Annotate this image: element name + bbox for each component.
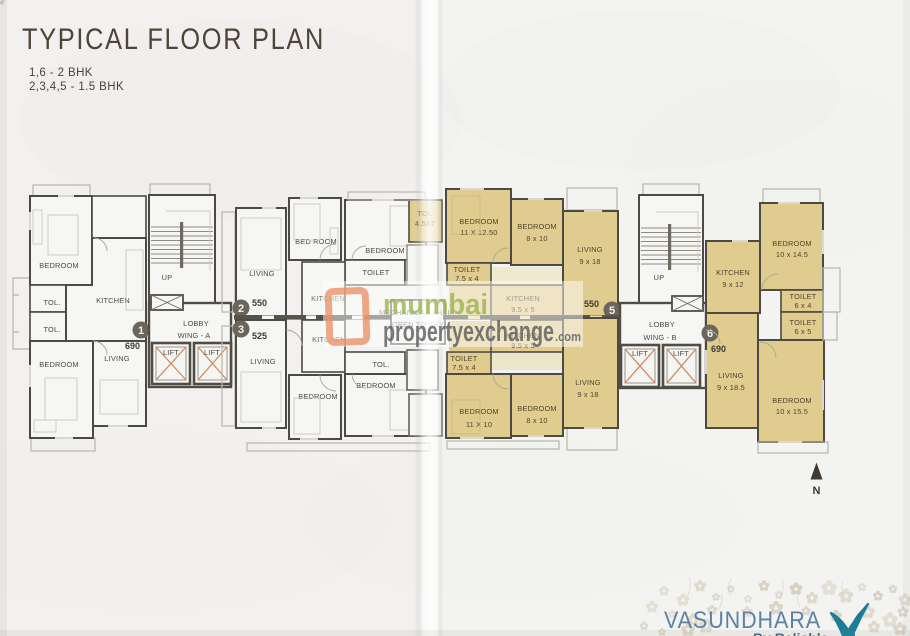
svg-text:11 X 10: 11 X 10	[466, 420, 492, 429]
svg-text:690: 690	[711, 344, 726, 354]
svg-text:LIFT: LIFT	[632, 349, 648, 358]
svg-text:LIVING: LIVING	[577, 245, 602, 254]
svg-text:LIFT: LIFT	[163, 348, 179, 357]
svg-text:BEDROOM: BEDROOM	[39, 261, 79, 270]
svg-text:N: N	[813, 485, 821, 497]
svg-text:UP: UP	[162, 273, 173, 282]
svg-text:WING - B: WING - B	[643, 333, 676, 342]
svg-text:BEDROOM: BEDROOM	[459, 407, 499, 416]
svg-text:BEDROOM: BEDROOM	[298, 392, 338, 401]
svg-text:.com: .com	[555, 329, 581, 344]
svg-text:1: 1	[138, 325, 144, 337]
svg-text:9 x 18.5: 9 x 18.5	[717, 383, 745, 392]
svg-text:UP: UP	[654, 273, 665, 282]
svg-text:TOILET: TOILET	[451, 354, 478, 363]
svg-text:BEDROOM: BEDROOM	[39, 360, 79, 369]
svg-text:BEDROOM: BEDROOM	[459, 217, 499, 226]
svg-text:LIVING: LIVING	[250, 357, 275, 366]
svg-text:8 x 10: 8 x 10	[526, 234, 547, 243]
svg-text:550: 550	[584, 299, 599, 309]
svg-text:LOBBY: LOBBY	[649, 320, 675, 329]
svg-text:6 x 5: 6 x 5	[794, 327, 811, 336]
svg-text:9 x 12: 9 x 12	[722, 280, 743, 289]
svg-text:LOBBY: LOBBY	[183, 319, 209, 328]
svg-text:BEDROOM: BEDROOM	[517, 222, 557, 231]
svg-text:WING - A: WING - A	[178, 331, 211, 340]
svg-text:LIFT: LIFT	[204, 348, 220, 357]
svg-text:2: 2	[238, 303, 244, 315]
svg-text:690: 690	[125, 341, 140, 351]
svg-text:10 x 14.5: 10 x 14.5	[776, 250, 808, 259]
svg-text:LIFT: LIFT	[673, 349, 689, 358]
svg-text:LIVING: LIVING	[104, 354, 129, 363]
svg-text:TOILET: TOILET	[454, 265, 481, 274]
svg-text:TOILET: TOILET	[790, 318, 817, 327]
svg-text:9 x 18: 9 x 18	[579, 257, 600, 266]
svg-text:525: 525	[252, 331, 267, 341]
svg-text:BEDROOM: BEDROOM	[772, 239, 812, 248]
svg-text:10 x 15.5: 10 x 15.5	[776, 407, 808, 416]
svg-text:TYPICAL FLOOR PLAN: TYPICAL FLOOR PLAN	[22, 23, 325, 56]
svg-text:KITCHEN: KITCHEN	[716, 268, 750, 277]
svg-text:TOL.: TOL.	[372, 360, 389, 369]
svg-text:BEDROOM: BEDROOM	[517, 404, 557, 413]
svg-text:TOILET: TOILET	[790, 292, 817, 301]
svg-text:11 X 12.50: 11 X 12.50	[460, 228, 497, 237]
svg-text:8 x 10: 8 x 10	[526, 416, 547, 425]
svg-text:550: 550	[252, 298, 267, 308]
svg-text:6 x 4: 6 x 4	[794, 301, 811, 310]
svg-text:7.5 x 4: 7.5 x 4	[452, 363, 476, 372]
svg-text:TOILET: TOILET	[363, 268, 390, 277]
svg-text:LIVING: LIVING	[575, 378, 600, 387]
svg-text:BEDROOM: BEDROOM	[356, 381, 396, 390]
svg-text:9 x 18: 9 x 18	[577, 390, 598, 399]
svg-text:BEDROOM: BEDROOM	[772, 396, 812, 405]
svg-text:TOL.: TOL.	[43, 298, 60, 307]
svg-text:2,3,4,5 - 1.5 BHK: 2,3,4,5 - 1.5 BHK	[29, 81, 124, 93]
svg-text:1,6 - 2 BHK: 1,6 - 2 BHK	[29, 67, 93, 79]
svg-text:propertyexchange: propertyexchange	[383, 316, 554, 348]
svg-text:KITCHEN: KITCHEN	[96, 296, 130, 305]
svg-text:BEDROOM: BEDROOM	[365, 246, 405, 255]
svg-text:TOL.: TOL.	[43, 325, 60, 334]
svg-text:LIVING: LIVING	[718, 371, 743, 380]
svg-text:3: 3	[238, 324, 244, 336]
